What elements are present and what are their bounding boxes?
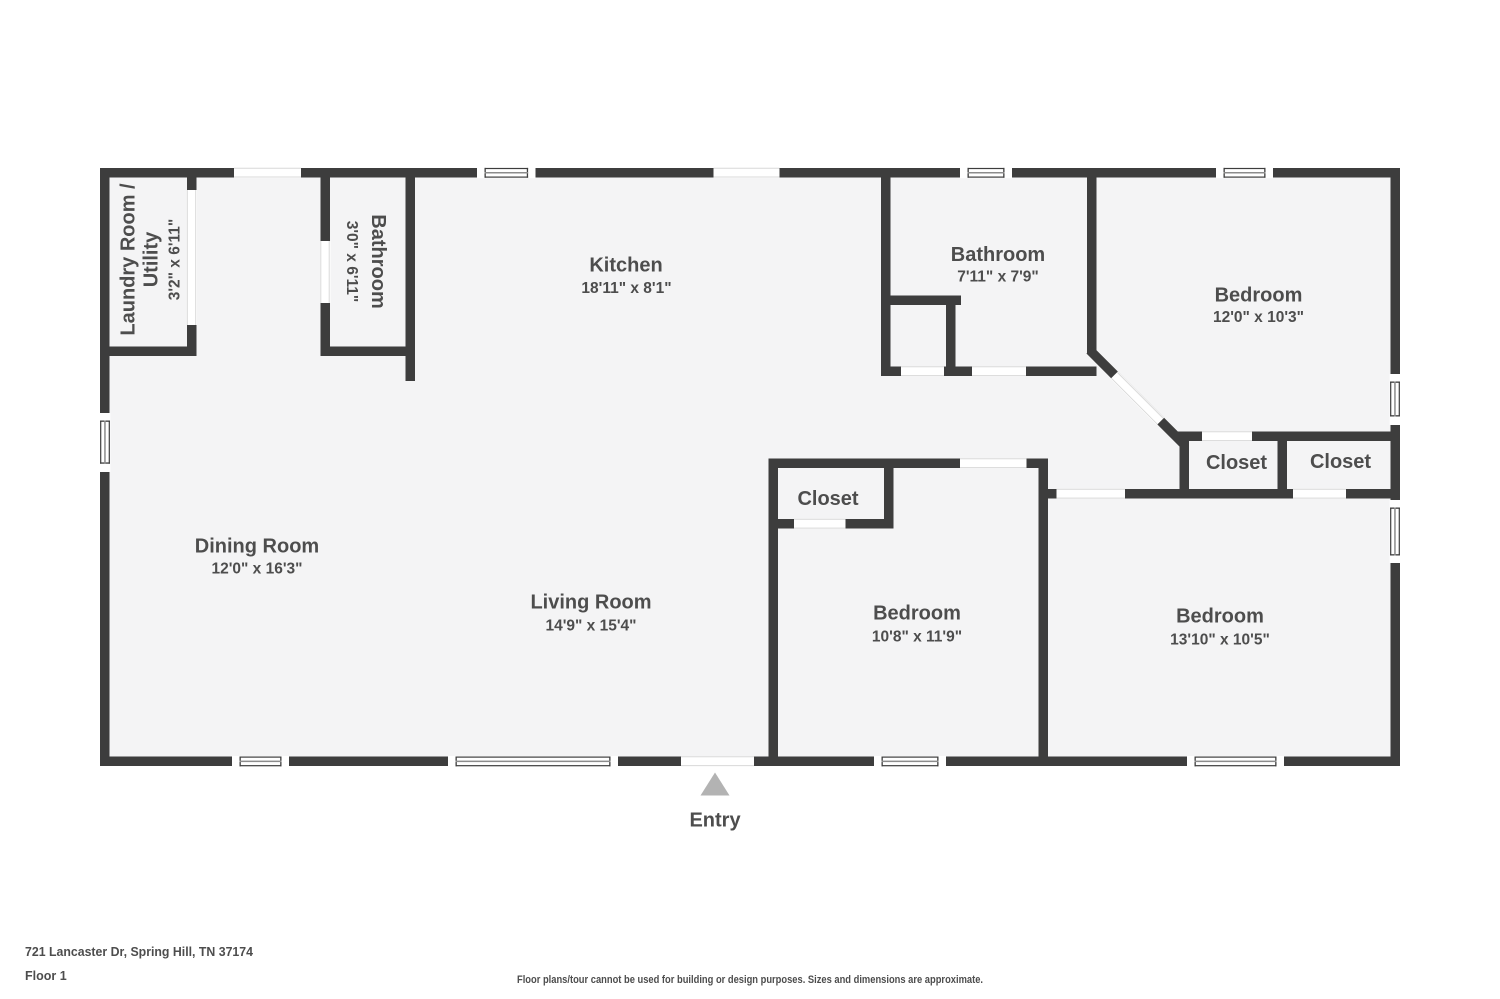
svg-text:Entry: Entry bbox=[689, 810, 741, 832]
svg-text:Closet: Closet bbox=[1310, 451, 1371, 473]
svg-text:Kitchen: Kitchen bbox=[589, 255, 662, 277]
svg-text:Laundry Room /: Laundry Room / bbox=[118, 183, 140, 336]
svg-text:Closet: Closet bbox=[797, 488, 858, 510]
svg-text:Dining Room: Dining Room bbox=[195, 536, 319, 558]
svg-text:13'10" x 10'5": 13'10" x 10'5" bbox=[1170, 632, 1270, 649]
svg-text:3'0" x 6'11": 3'0" x 6'11" bbox=[343, 221, 360, 303]
svg-text:721 Lancaster Dr, Spring Hill,: 721 Lancaster Dr, Spring Hill, TN 37174 bbox=[25, 945, 253, 959]
svg-text:Utility: Utility bbox=[141, 231, 163, 287]
svg-text:12'0" x 16'3": 12'0" x 16'3" bbox=[211, 561, 302, 578]
svg-text:12'0" x 10'3": 12'0" x 10'3" bbox=[1213, 309, 1304, 326]
svg-text:18'11" x 8'1": 18'11" x 8'1" bbox=[581, 280, 671, 297]
svg-text:7'11" x 7'9": 7'11" x 7'9" bbox=[957, 269, 1039, 286]
svg-text:Floor 1: Floor 1 bbox=[25, 969, 67, 983]
svg-text:3'2" x 6'11": 3'2" x 6'11" bbox=[167, 219, 184, 301]
svg-text:Bedroom: Bedroom bbox=[1176, 606, 1264, 628]
svg-text:Floor plans/tour cannot be use: Floor plans/tour cannot be used for buil… bbox=[517, 974, 983, 986]
svg-text:14'9" x 15'4": 14'9" x 15'4" bbox=[545, 618, 636, 635]
svg-text:Bedroom: Bedroom bbox=[873, 603, 961, 625]
svg-text:Bathroom: Bathroom bbox=[951, 244, 1045, 266]
svg-text:Closet: Closet bbox=[1206, 452, 1267, 474]
svg-text:10'8" x 11'9": 10'8" x 11'9" bbox=[872, 629, 962, 646]
svg-text:Bedroom: Bedroom bbox=[1215, 285, 1303, 307]
svg-text:Bathroom: Bathroom bbox=[367, 214, 389, 308]
svg-text:Living Room: Living Room bbox=[530, 592, 651, 614]
